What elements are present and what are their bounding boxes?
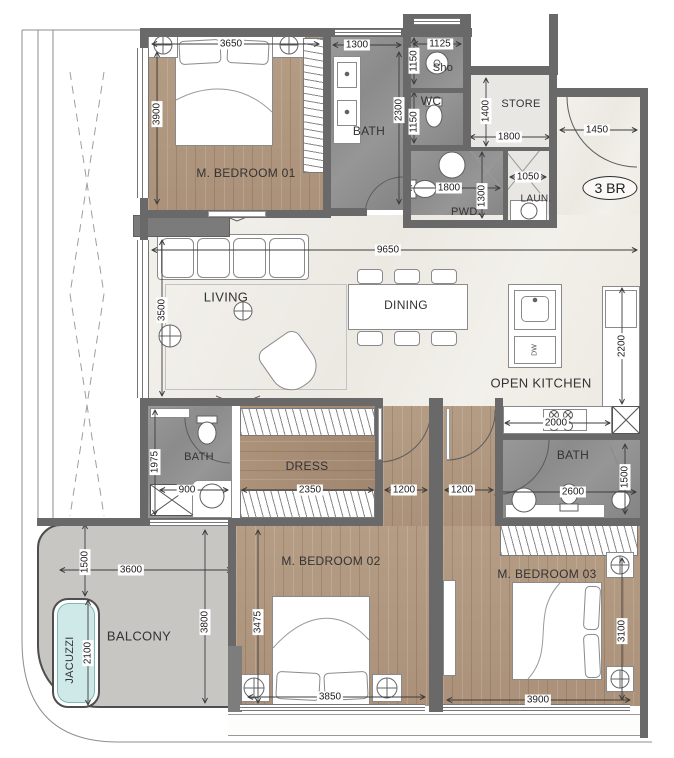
dim-kitchen-h: 2200 <box>617 333 628 359</box>
bedroom3-desk <box>443 580 456 676</box>
dim-powder-w: 1800 <box>436 183 462 194</box>
duct-shaft <box>612 406 640 434</box>
dim-entry-w: 1450 <box>584 125 610 136</box>
label-jacuzzi: JACUZZI <box>64 636 76 683</box>
wall-bath-bottom <box>331 208 367 216</box>
sofa-cushion <box>269 238 305 278</box>
pier-bed2 <box>228 646 242 712</box>
bed3-nightstand-top <box>606 552 634 578</box>
bed2-nightstand-left <box>238 674 270 702</box>
wall-hall2-right <box>495 398 503 518</box>
wall-sho-wc <box>410 88 463 93</box>
dim-balcony-offset: 1500 <box>80 549 91 575</box>
bed1-pillow-left <box>178 39 221 65</box>
dim-shower-h: 1150 <box>409 48 420 74</box>
window-bath-top <box>335 29 401 36</box>
bath-top-sink1 <box>337 62 357 88</box>
wall-top <box>140 28 472 37</box>
dim-kitchen-w: 2000 <box>543 418 569 429</box>
dim-hall1-w: 1200 <box>391 485 417 496</box>
bed2-nightstand-right <box>372 674 402 702</box>
dim-bedroom2-w: 3850 <box>317 692 343 703</box>
dim-bath-top-w: 1300 <box>344 40 370 51</box>
bath-mid-vanity <box>192 480 232 518</box>
dim-hall2-w: 1200 <box>449 485 475 496</box>
bedroom1-wardrobe <box>303 38 324 173</box>
island-sink-basin <box>521 296 549 322</box>
dim-bath-right-w: 2600 <box>560 487 586 498</box>
wall-bathR-top <box>495 434 640 440</box>
dim-living-h: 3500 <box>157 297 168 323</box>
wall-bed1-bath <box>323 32 331 215</box>
label-laundry: LAUN. <box>521 194 552 205</box>
sofa-cushion <box>197 238 230 278</box>
dress-wardrobe-top <box>240 408 375 436</box>
bed3-pillow-bottom <box>583 634 601 679</box>
floor-plan: DW <box>0 0 674 758</box>
wall-halls-divider <box>429 398 443 712</box>
wall-store-top <box>463 66 558 75</box>
hall2-door-leaf <box>446 408 450 460</box>
dim-bath-right-h: 1500 <box>620 464 631 490</box>
wall-bathR-bottom <box>495 518 640 526</box>
label-store: STORE <box>501 98 540 110</box>
dim-shower-w: 1125 <box>427 39 453 50</box>
entry-floor <box>557 97 640 228</box>
wall-bed2-top <box>240 518 383 526</box>
bed3-pillow-top <box>583 586 601 631</box>
dim-bath-mid-w: 900 <box>177 485 198 496</box>
dining-chair <box>431 331 457 346</box>
hall1-floor <box>383 406 429 526</box>
wall-right-outer <box>640 88 648 738</box>
dim-laundry-w: 1050 <box>515 172 541 183</box>
bed2-pillow-left <box>275 671 320 701</box>
wall-shower-col <box>463 28 471 150</box>
wall-entry-top <box>549 88 648 97</box>
label-shower: Sho <box>433 62 453 74</box>
label-bedroom1: M. BEDROOM 01 <box>196 166 295 180</box>
bath-right-counter <box>505 504 605 518</box>
window-shower <box>414 18 460 25</box>
dim-store-h: 1400 <box>481 98 492 124</box>
label-bedroom2: M. BEDROOM 02 <box>281 554 380 568</box>
wall-store-pwd <box>467 147 553 151</box>
label-bedroom3: M. BEDROOM 03 <box>497 567 596 581</box>
label-balcony: BALCONY <box>107 629 171 644</box>
dim-open-w: 9650 <box>375 245 401 256</box>
hall1-door-leaf <box>378 408 382 460</box>
dim-wc-h: 1150 <box>409 109 420 135</box>
dim-bedroom3-w: 3900 <box>525 695 551 706</box>
dim-bath-top-h: 2300 <box>394 97 405 123</box>
label-bath-right: BATH <box>557 448 589 462</box>
wall-pwd-bottom <box>403 220 557 228</box>
badge-3br: 3 BR <box>582 176 637 200</box>
dim-bedroom1-w: 3650 <box>218 39 244 50</box>
rug <box>165 284 347 390</box>
label-wc: WC <box>421 94 442 108</box>
dining-chair <box>394 331 420 346</box>
dim-bedroom1-h: 3900 <box>152 101 163 127</box>
ledge <box>228 714 648 736</box>
bed1-slider <box>208 211 266 217</box>
dim-balcony-h: 3800 <box>200 609 211 635</box>
dim-bedroom2-h: 3475 <box>253 609 264 635</box>
wall-wc-pwd <box>403 145 471 151</box>
label-kitchen: OPEN KITCHEN <box>490 376 591 391</box>
dim-bedroom3-h: 3100 <box>617 618 628 644</box>
window-bedroom2 <box>240 704 425 711</box>
window-living <box>137 240 149 398</box>
dim-jacuzzi-h: 2100 <box>83 640 94 666</box>
label-dress: DRESS <box>286 459 329 473</box>
dining-chair <box>357 331 383 346</box>
bath-top-sink2 <box>337 100 357 126</box>
dishwasher-label: DW <box>532 344 539 356</box>
dim-store-w: 1800 <box>496 132 522 143</box>
bath-mid-shelf <box>150 408 190 418</box>
label-dining: DINING <box>384 298 428 312</box>
dim-dress-w: 2350 <box>297 485 323 496</box>
dining-chair <box>394 269 420 284</box>
dim-bath-mid-h: 1975 <box>150 449 161 475</box>
sofa-cushion <box>161 238 194 278</box>
sofa-cushion <box>233 238 266 278</box>
dining-chair <box>431 269 457 284</box>
wall-laun-pwd <box>503 150 508 222</box>
dining-chair <box>357 269 383 284</box>
hall2-floor <box>443 406 495 526</box>
dim-balcony-w: 3600 <box>118 565 144 576</box>
window-bedroom1 <box>137 48 149 198</box>
label-bath-top: BATH <box>353 124 385 138</box>
fridge <box>605 290 637 328</box>
label-powder: PWD. <box>451 206 481 218</box>
balcony-slider <box>150 519 228 526</box>
label-living: LIVING <box>204 290 248 305</box>
label-bath-mid: BATH <box>184 451 214 463</box>
bed3-nightstand-bottom <box>606 666 634 692</box>
wall-mid <box>140 398 383 406</box>
